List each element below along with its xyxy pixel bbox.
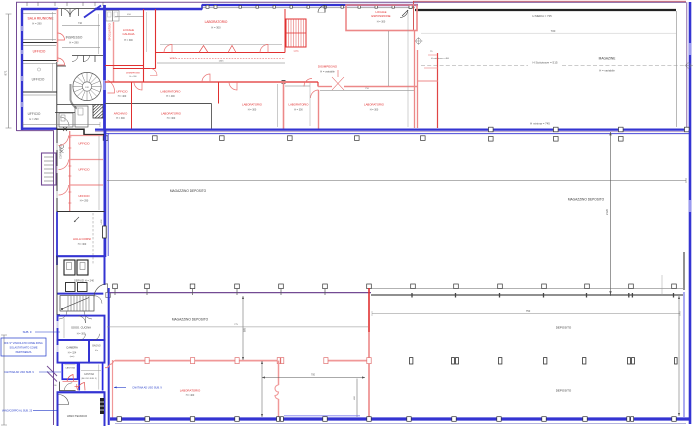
svg-text:CALDAIA: CALDAIA [123, 32, 135, 36]
svg-text:LABORATORIO: LABORATORIO [161, 89, 182, 93]
svg-text:PERTINENZA: PERTINENZA [16, 351, 32, 354]
svg-text:H = variabile: H = variabile [320, 69, 335, 73]
svg-text:2120: 2120 [605, 208, 609, 215]
svg-text:H = variabile: H = variabile [599, 68, 615, 72]
svg-text:UFFICIO: UFFICIO [33, 49, 46, 53]
svg-text:LABORATORIO: LABORATORIO [364, 103, 385, 107]
svg-text:DEPOSITO: DEPOSITO [556, 325, 572, 329]
svg-text:CANTINA: CANTINA [65, 366, 75, 369]
svg-text:LABORATORIO: LABORATORIO [180, 388, 201, 392]
svg-text:CANTINA: CANTINA [84, 373, 95, 376]
svg-text:H = 300: H = 300 [248, 108, 257, 111]
svg-text:H = 300: H = 300 [124, 39, 133, 42]
svg-text:700: 700 [311, 374, 316, 377]
svg-text:H = 300: H = 300 [211, 26, 221, 30]
svg-text:UFFICIO: UFFICIO [32, 78, 45, 82]
svg-text:CANTINA AD USO SUB. 9: CANTINA AD USO SUB. 9 [4, 371, 34, 374]
svg-text:SERVIZI H = 240: SERVIZI H = 240 [74, 278, 94, 282]
svg-text:VANO/CORPO AL SUB. 23: VANO/CORPO AL SUB. 23 [2, 410, 33, 413]
svg-text:H = 290: H = 290 [32, 21, 42, 25]
svg-text:971: 971 [4, 70, 8, 75]
svg-text:750: 750 [526, 309, 531, 313]
svg-text:H = 290: H = 290 [29, 117, 39, 121]
svg-text:13R: 13R [85, 87, 89, 89]
svg-text:H = 300: H = 300 [167, 117, 176, 120]
svg-text:H = 300: H = 300 [77, 333, 86, 336]
svg-text:MAGAZINE: MAGAZINE [599, 57, 616, 61]
svg-text:H = 300: H = 300 [377, 21, 386, 24]
svg-text:BAGNO: BAGNO [92, 344, 101, 347]
svg-text:RIF. 9° VINCOLATO COME ZONA: RIF. 9° VINCOLATO COME ZONA [4, 342, 43, 345]
svg-text:CORRIDOIO: CORRIDOIO [60, 145, 63, 159]
svg-text:130: 130 [54, 385, 57, 387]
svg-text:DISIMPEGNO: DISIMPEGNO [318, 65, 338, 69]
svg-text:DISIMPEGNO: DISIMPEGNO [126, 72, 140, 74]
svg-text:VANO TECNICO: VANO TECNICO [67, 414, 87, 418]
svg-text:H = 290: H = 290 [80, 200, 89, 203]
svg-text:MAGAZZINO DEPOSITO: MAGAZZINO DEPOSITO [172, 317, 209, 321]
svg-text:LABORATORIO: LABORATORIO [161, 111, 182, 115]
svg-text:SOGG. CUCINA: SOGG. CUCINA [71, 325, 91, 329]
svg-text:1445: 1445 [219, 61, 225, 63]
svg-text:MAGAZZINO DEPOSITO: MAGAZZINO DEPOSITO [568, 198, 605, 202]
svg-text:SUB. 9: SUB. 9 [23, 330, 32, 334]
svg-text:H = 400: H = 400 [186, 394, 195, 397]
svg-text:LABORATORIO: LABORATORIO [242, 103, 263, 107]
svg-text:H sottotrave = 460: H sottotrave = 460 [431, 57, 450, 60]
svg-text:INGRESSO: INGRESSO [66, 36, 83, 40]
svg-text:H = 300: H = 300 [294, 108, 303, 111]
svg-text:AULA CORSI: AULA CORSI [73, 237, 91, 241]
svg-text:UFFICIO: UFFICIO [78, 141, 90, 145]
svg-text:H = 400: H = 400 [118, 95, 127, 98]
svg-text:H minima = 745: H minima = 745 [530, 121, 550, 125]
svg-text:ESPOSIZIONE: ESPOSIZIONE [372, 14, 391, 18]
svg-text:H = 300: H = 300 [129, 76, 137, 78]
svg-text:DEPOSITO: DEPOSITO [556, 388, 572, 392]
svg-text:CANTINA AD USO SUB. 9: CANTINA AD USO SUB. 9 [132, 386, 162, 389]
svg-text:UFFICIO: UFFICIO [78, 194, 90, 198]
svg-text:salita: salita [293, 50, 299, 53]
svg-text:(min): (min) [70, 356, 75, 358]
svg-text:uscita 1: uscita 1 [170, 56, 177, 59]
svg-text:895: 895 [244, 327, 247, 332]
svg-text:SOLASTATIVATO COME: SOLASTATIVATO COME [10, 346, 38, 349]
svg-text:700: 700 [551, 29, 556, 33]
svg-text:UFFICIO: UFFICIO [78, 167, 90, 171]
svg-text:LABORATORIO: LABORATORIO [205, 20, 228, 24]
svg-text:(AD USO SUB. 9): (AD USO SUB. 9) [81, 377, 96, 380]
svg-text:H = 400: H = 400 [166, 95, 175, 98]
svg-text:ARCHIVIO: ARCHIVIO [114, 111, 128, 115]
svg-text:H = 300: H = 300 [370, 108, 379, 111]
svg-text:UFFICIO: UFFICIO [116, 89, 128, 93]
svg-text:H = 300: H = 300 [116, 117, 125, 120]
svg-text:H = 300: H = 300 [78, 243, 87, 246]
svg-text:UFFICIO: UFFICIO [28, 112, 41, 116]
svg-text:h 290: h 290 [101, 219, 103, 225]
svg-text:LABORATORIO: LABORATORIO [289, 103, 310, 107]
svg-text:CAMERA: CAMERA [66, 346, 78, 350]
svg-text:MAGAZZINO DEPOSITO: MAGAZZINO DEPOSITO [170, 189, 207, 193]
svg-text:SALA RIUNIONE: SALA RIUNIONE [27, 17, 54, 21]
svg-text:H = 290: H = 290 [69, 40, 79, 44]
svg-text:H = 324: H = 324 [68, 352, 77, 355]
svg-text:SPOGLIATOIO: SPOGLIATOIO [108, 23, 112, 41]
svg-text:H Sottotrave = 515: H Sottotrave = 515 [532, 60, 557, 64]
svg-text:710: 710 [78, 22, 83, 25]
svg-text:H MEDIA = 735: H MEDIA = 735 [532, 14, 552, 18]
